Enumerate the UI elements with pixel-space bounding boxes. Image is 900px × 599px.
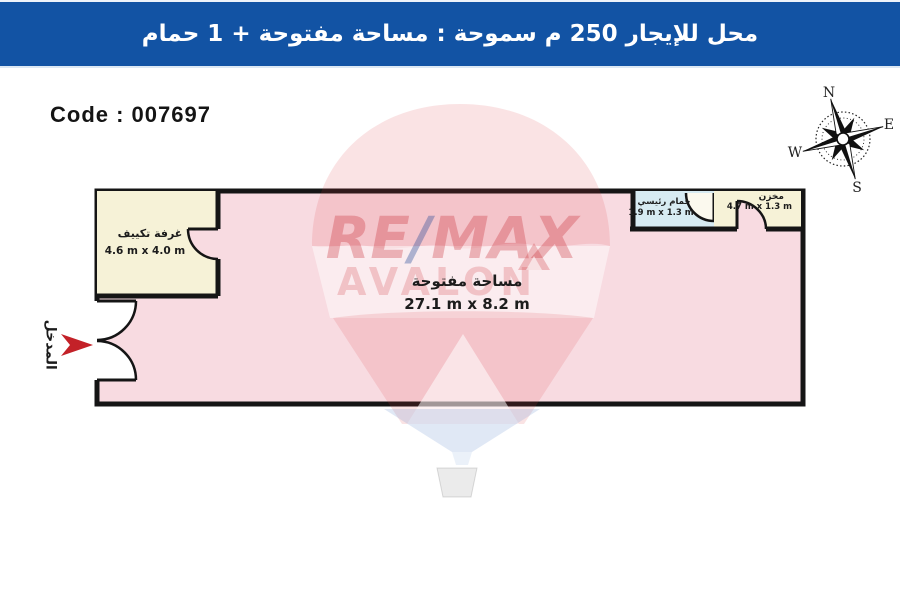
storage-dimensions: 4.7 m x 1.3 m	[696, 203, 796, 212]
page-title: محل للإيجار 250 م سموحة : مساحة مفتوحة +…	[142, 21, 758, 47]
open-area-name: مساحة مفتوحة	[357, 273, 577, 290]
entrance-label: المدخل	[42, 309, 57, 381]
open-area-dimensions: 27.1 m x 8.2 m	[357, 296, 577, 313]
title-bar: محل للإيجار 250 م سموحة : مساحة مفتوحة +…	[0, 0, 900, 68]
compass-rose-icon: N E S W	[784, 80, 900, 198]
compass-north-label: N	[823, 85, 835, 101]
compass-west-label: W	[788, 145, 803, 161]
page: محل للإيجار 250 م سموحة : مساحة مفتوحة +…	[0, 0, 900, 599]
ac-room-name: غرفة تكييف	[95, 228, 205, 240]
compass-east-label: E	[884, 117, 894, 133]
ac-room-dimensions: 4.6 m x 4.0 m	[90, 246, 200, 258]
compass-south-label: S	[852, 180, 862, 196]
code-label: Code : 007697	[50, 102, 211, 128]
entrance-arrow-icon	[61, 334, 93, 356]
